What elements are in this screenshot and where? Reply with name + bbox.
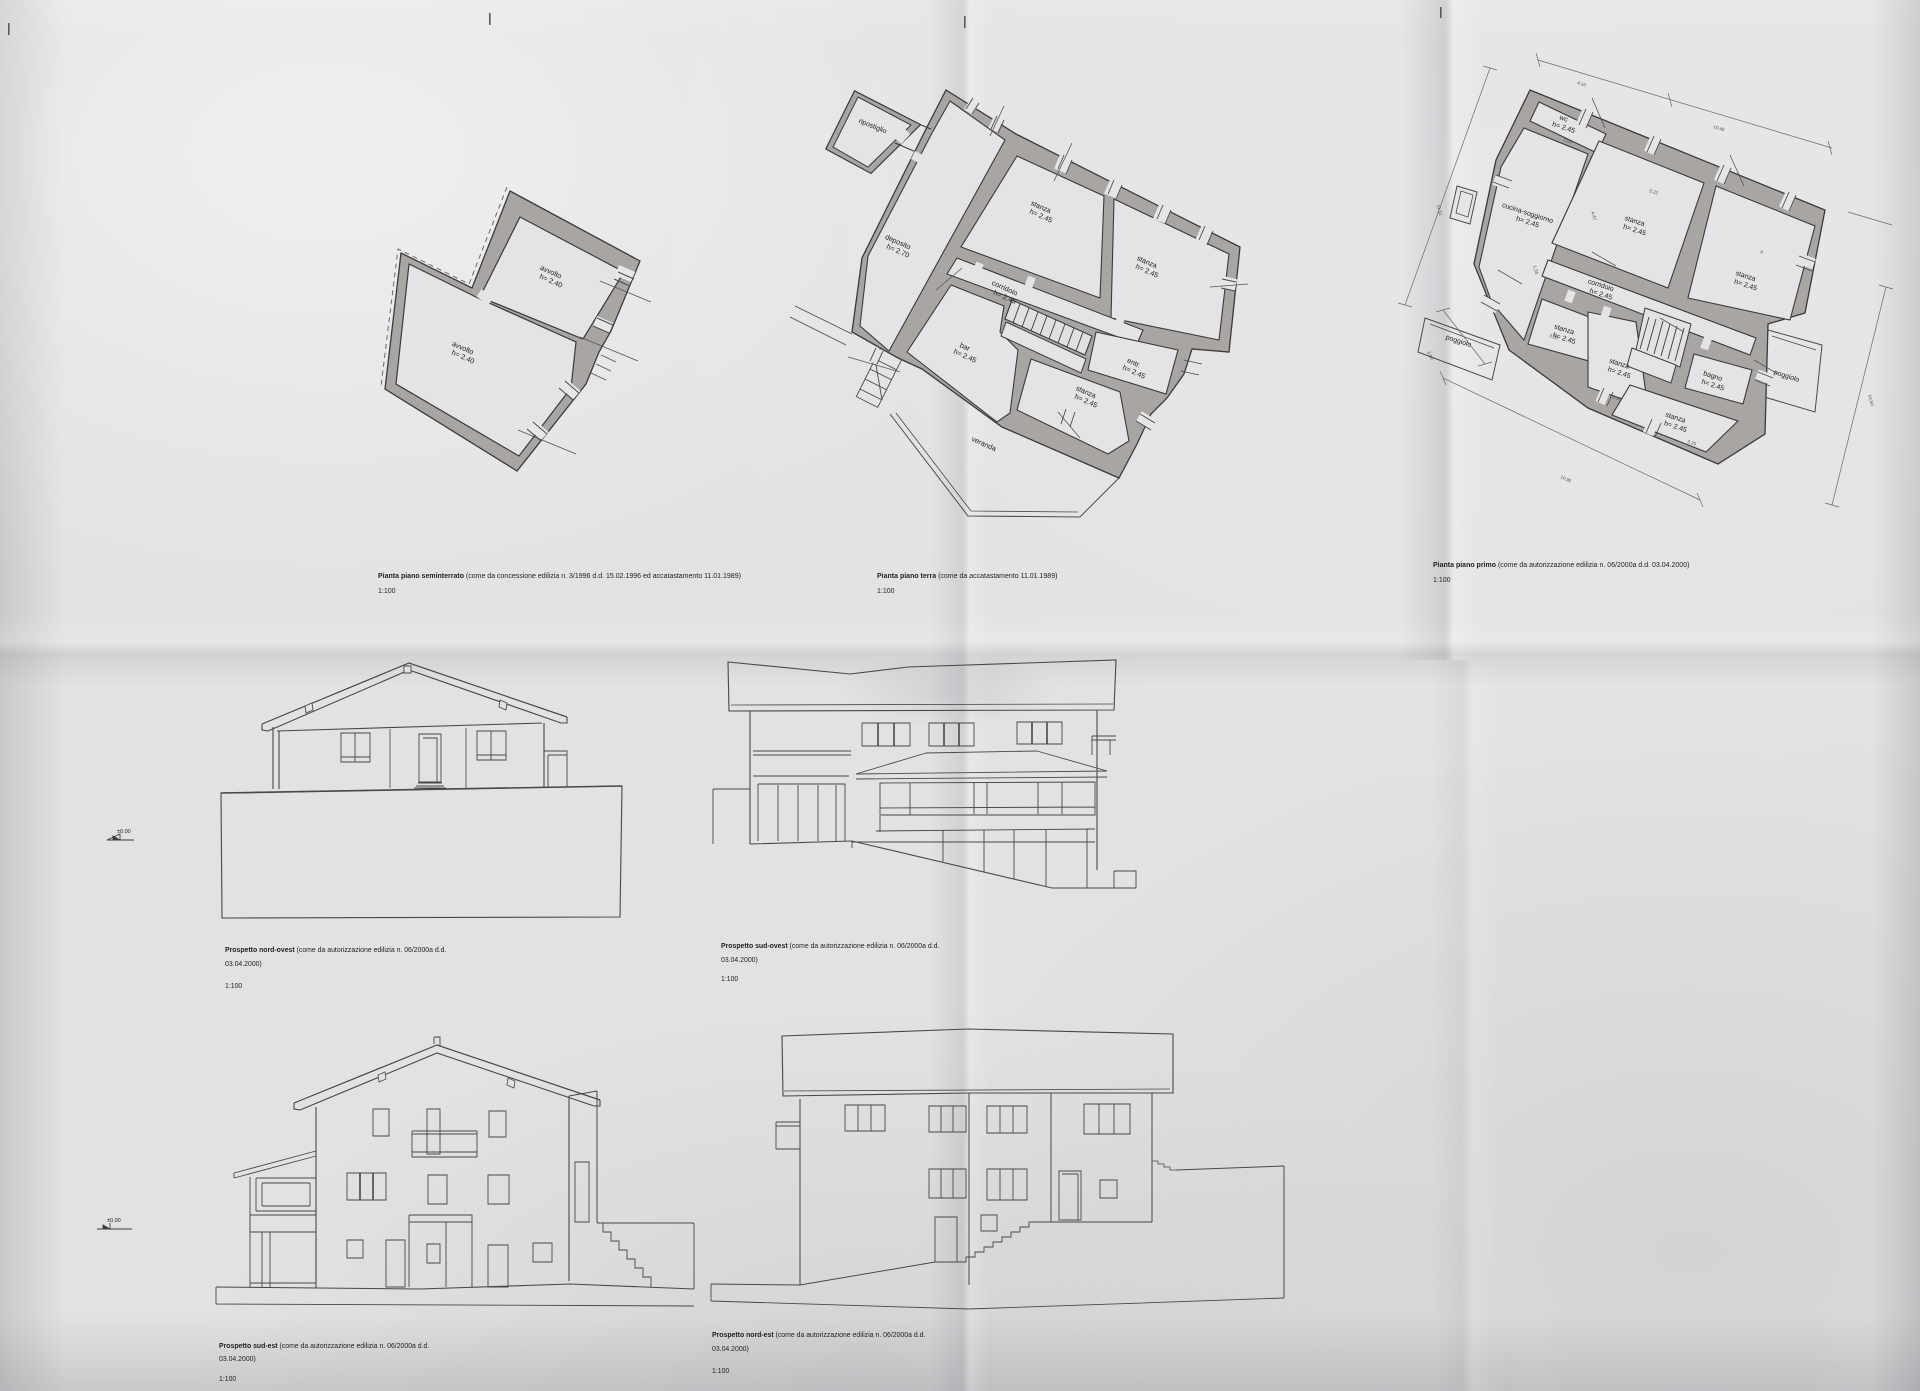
svg-text:Pianta piano terra (come da ac: Pianta piano terra (come da accatastamen… xyxy=(877,573,1057,580)
svg-text:03.04.2000): 03.04.2000) xyxy=(712,1346,749,1353)
svg-text:Prospetto sud-est (come da aut: Prospetto sud-est (come da autorizzazion… xyxy=(219,1343,429,1350)
svg-text:Pianta piano primo (come da au: Pianta piano primo (come da autorizzazio… xyxy=(1433,562,1689,569)
svg-text:Prospetto nord-ovest (come da: Prospetto nord-ovest (come da autorizzaz… xyxy=(225,947,446,954)
svg-text:1:100: 1:100 xyxy=(378,588,396,595)
svg-text:Pianta piano seminterrato (com: Pianta piano seminterrato (come da conce… xyxy=(378,573,741,580)
svg-text:veranda: veranda xyxy=(970,434,997,453)
svg-text:10.50: 10.50 xyxy=(1867,394,1875,407)
svg-text:1:100: 1:100 xyxy=(1433,577,1451,584)
svg-text:1:100: 1:100 xyxy=(877,588,895,595)
svg-text:4.10: 4.10 xyxy=(1577,80,1587,88)
svg-text:Prospetto sud-ovest (come da a: Prospetto sud-ovest (come da autorizzazi… xyxy=(721,943,939,950)
svg-text:1:100: 1:100 xyxy=(225,983,242,990)
svg-text:1:100: 1:100 xyxy=(721,976,738,983)
svg-text:Prospetto nord-est (come da au: Prospetto nord-est (come da autorizzazio… xyxy=(712,1332,925,1339)
svg-text:03.04.2000): 03.04.2000) xyxy=(721,957,758,964)
svg-text:1:100: 1:100 xyxy=(712,1368,729,1375)
svg-text:03.04.2000): 03.04.2000) xyxy=(225,961,262,968)
svg-text:10.95: 10.95 xyxy=(1560,474,1573,483)
svg-text:10.45: 10.45 xyxy=(1713,124,1726,132)
svg-text:±0.00: ±0.00 xyxy=(107,1218,121,1224)
svg-text:03.04.2000): 03.04.2000) xyxy=(219,1356,256,1363)
svg-text:poggiolo: poggiolo xyxy=(1445,334,1472,349)
svg-text:1:100: 1:100 xyxy=(219,1376,236,1383)
svg-text:±0.00: ±0.00 xyxy=(117,829,131,835)
svg-text:poggiolo: poggiolo xyxy=(1773,369,1800,384)
